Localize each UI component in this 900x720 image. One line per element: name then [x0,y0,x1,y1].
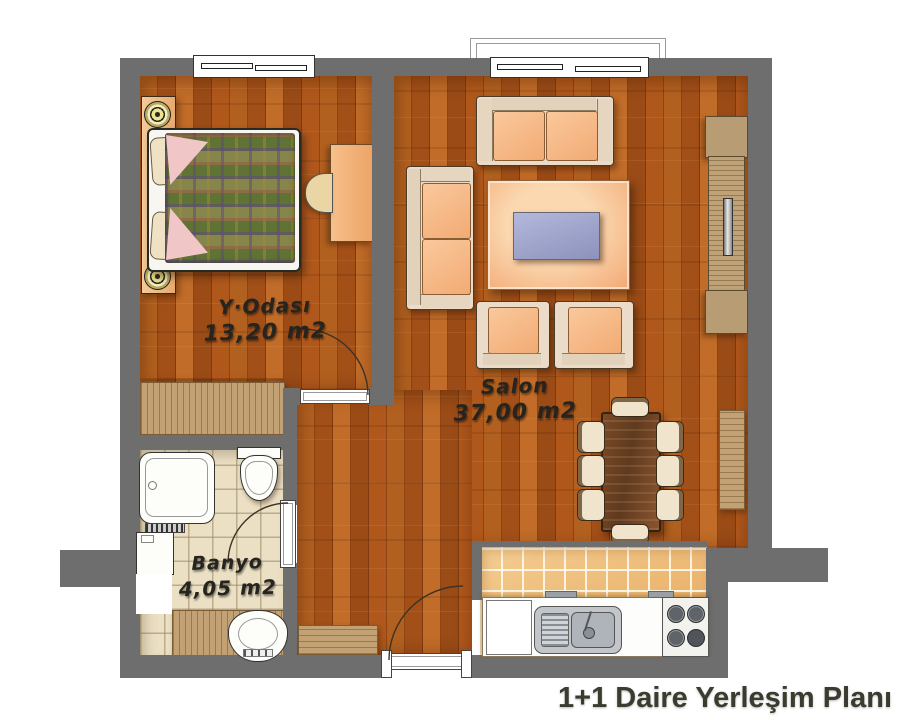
dining-chair [611,397,649,417]
bedroom-dresser [140,382,285,435]
armchair [476,301,550,369]
dining-chair [577,455,605,487]
sofa-cushion [422,239,471,295]
bedroom-door [300,389,370,404]
bedroom-window [193,55,315,78]
entrance-door [388,653,466,670]
wall-bedroom-door-stub [283,388,300,405]
stove-burner [667,605,685,623]
wall-top-middle [313,58,490,76]
dining-chair [577,421,605,453]
wall-bedroom-door-right [368,388,394,405]
washing-machine-knob [141,535,154,543]
bathtub [139,452,215,524]
coffee-table-glass [513,212,600,260]
stove-burner [687,605,705,623]
counter-item [545,591,577,598]
dining-chair [656,421,684,453]
wall-right [748,58,772,550]
entrance-doormat [298,625,378,655]
tv-screen [723,198,733,256]
armchair [554,301,634,369]
stove-burner [687,629,705,647]
basin-inner [238,618,278,650]
stove-burner [667,629,685,647]
wall-step-left [60,550,137,587]
bedroom-desk [330,144,373,242]
dining-chair [656,455,684,487]
dining-chair [656,489,684,521]
toilet-bowl-inner [245,461,273,495]
basin-faucet [243,649,273,657]
tv-cabinet-bottom [705,290,748,334]
sofa-cushion [422,183,471,239]
wall-hall-bath-upper [283,405,297,505]
kitchen-sink [534,606,622,654]
plan-title: 1+1 Daire Yerleşim Planı [392,682,892,715]
wall-kitchen-tile-edge [472,541,707,547]
bathroom-area: 4,05 m2 [140,573,316,603]
tv-cabinet-top [705,116,748,158]
window-sash [255,65,307,71]
window-sash [201,63,253,69]
armchair-back [562,353,625,365]
hallway-floor [297,390,472,655]
wall-bottom-right [463,655,728,678]
bathroom-label: Banyo 4,05 m2 [139,550,315,603]
wall-step-right [706,548,828,582]
bedroom-area: 13,20 m2 [175,317,356,349]
floor-plan: Y·Odası 13,20 m2 Salon 37,00 m2 Banyo 4,… [0,0,900,720]
sofa-arm [421,168,470,182]
sofa-two-seat-left [406,166,474,310]
sofa-arm [421,294,470,308]
window-sash [575,66,641,72]
wall-bedroom-living [372,58,394,405]
armchair-back [483,353,541,365]
bathtub-drain [148,481,157,490]
entrance-door-jamb [381,650,392,678]
nightstand-lamp [144,101,171,128]
window-sash [497,64,563,70]
wall-kitchen-stub [472,543,482,600]
livingroom-window [490,57,649,78]
sofa-two-seat-top [476,96,614,166]
sofa-back [492,98,596,111]
livingroom-area: 37,00 m2 [425,397,606,429]
refrigerator [486,600,532,655]
stove [662,597,709,657]
bathroom-basin [228,610,288,662]
sofa-cushion [493,111,545,161]
entrance-door-jamb [461,650,472,678]
armchair-cushion [568,307,622,354]
sink-drainboard [541,613,569,647]
livingroom-label: Salon 37,00 m2 [424,372,605,429]
radiator [719,410,745,510]
sofa-cushion [546,111,598,161]
armchair-cushion [488,307,539,354]
dining-chair [577,489,605,521]
sofa-arm [478,99,493,161]
sofa-back [408,169,421,305]
sofa-arm [597,99,612,161]
bedroom-label: Y·Odası 13,20 m2 [174,292,355,349]
dining-table [601,412,661,532]
